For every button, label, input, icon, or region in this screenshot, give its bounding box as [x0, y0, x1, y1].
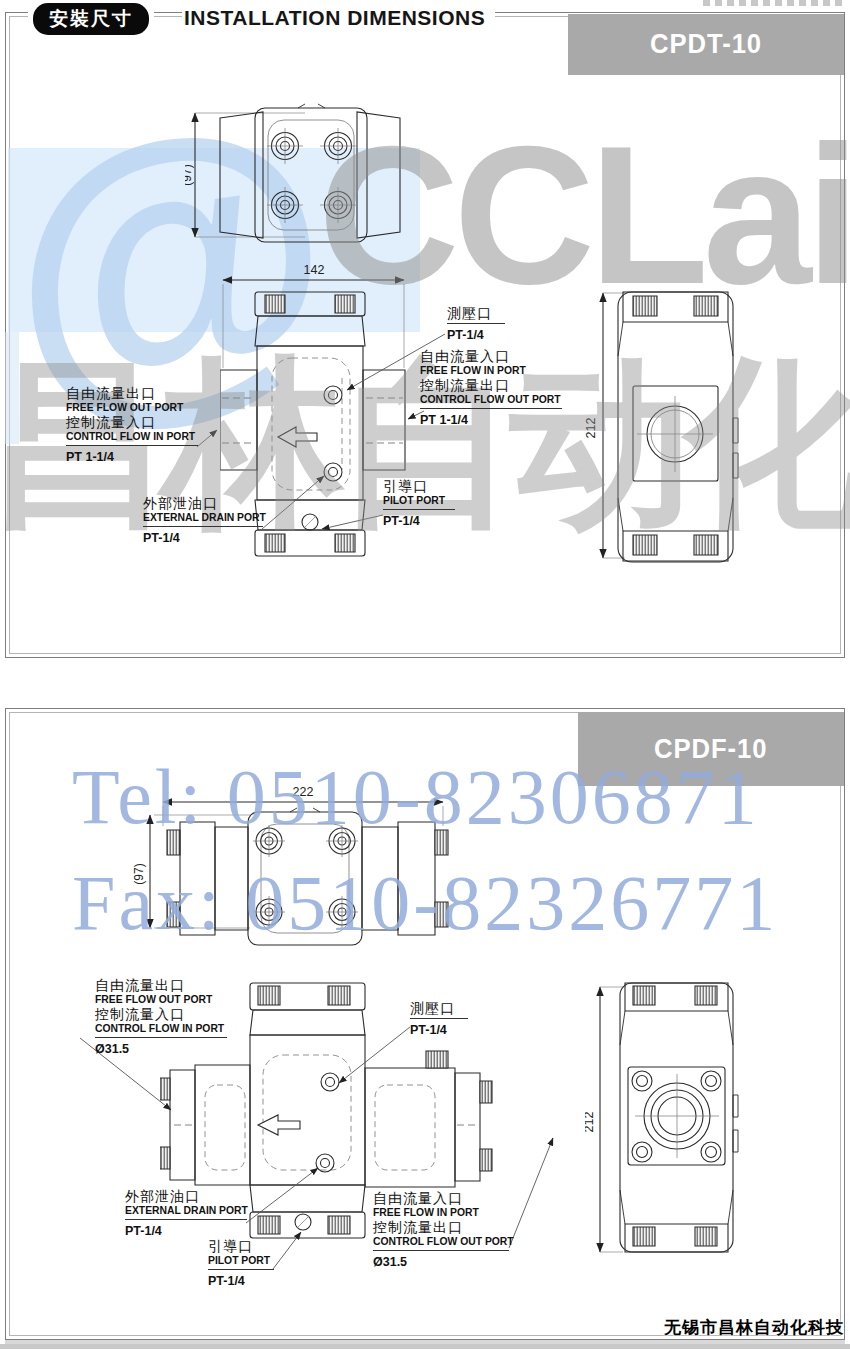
dim-depth: (97) — [185, 164, 194, 185]
bolt-icon — [326, 896, 358, 928]
section-badge-text: 安裝尺寸 — [33, 3, 149, 35]
main-port-circle — [635, 1074, 719, 1158]
flow-arrow-icon — [258, 1115, 300, 1135]
label-flow-right-p1: 自由流量入口 FREE FLOW IN PORT 控制流量出口 CONTROL … — [420, 348, 585, 427]
flange-bolt-icon — [632, 1071, 652, 1091]
main-port-circle — [637, 396, 713, 472]
bolt-icon — [253, 896, 285, 928]
label-test-port-p2: 測壓口 PT-1/4 — [410, 1000, 468, 1037]
flow-arrow-icon — [278, 427, 317, 447]
model-banner-cpdf10: CPDF-10 — [578, 712, 844, 786]
label-pilot-port-p1: 引導口 PILOT PORT PT-1/4 — [383, 478, 455, 528]
bolt-icon — [326, 825, 358, 857]
footer-company: 无锡市昌林自动化科技 — [664, 1316, 844, 1339]
label-pilot-port-p2: 引導口 PILOT PORT PT-1/4 — [208, 1238, 274, 1288]
model-banner-cpdt10: CPDT-10 — [568, 14, 844, 75]
label-flow-right-p2: 自由流量入口 FREE FLOW IN PORT 控制流量出口 CONTROL … — [373, 1190, 543, 1269]
cpdf10-top-view: 222 (97) — [130, 782, 460, 952]
bolt-icon — [320, 187, 356, 223]
label-drain-port-p1: 外部泄油口 EXTERNAL DRAIN PORT PT-1/4 — [143, 495, 263, 545]
dim-height: 212 — [585, 1112, 596, 1133]
bolt-icon — [253, 825, 285, 857]
cpdt10-side-view: 212 — [575, 268, 760, 575]
dim-width: 222 — [293, 785, 314, 799]
catalog-page: 安裝尺寸 INSTALLATION DIMENSIONS CPDT-10 CPD… — [0, 0, 850, 1365]
drain-port-circle — [324, 463, 342, 481]
dim-height: 212 — [584, 418, 598, 439]
dim-width: 142 — [304, 263, 325, 277]
footer-divider — [0, 1344, 850, 1349]
section-badge: 安裝尺寸 — [28, 1, 154, 37]
pilot-port-circle — [302, 514, 318, 530]
drain-port-circle — [316, 1154, 334, 1172]
model-name: CPDF-10 — [654, 734, 768, 765]
pilot-port-circle — [295, 1214, 311, 1230]
flange-bolt-icon — [632, 1142, 652, 1162]
page-title: INSTALLATION DIMENSIONS — [182, 4, 495, 32]
cpdt10-top-view: (97) — [185, 100, 415, 250]
test-port-circle — [324, 386, 342, 404]
test-port-circle — [321, 1073, 339, 1091]
cpdf10-side-view: 212 — [585, 975, 780, 1275]
label-flow-left-p2: 自由流量出口 FREE FLOW OUT PORT 控制流量入口 CONTROL… — [95, 977, 255, 1056]
label-drain-port-p2: 外部泄油口 EXTERNAL DRAIN PORT PT-1/4 — [125, 1188, 247, 1238]
bolt-icon — [267, 128, 303, 164]
bolt-icon — [320, 128, 356, 164]
model-name: CPDT-10 — [650, 29, 762, 60]
dim-depth: (97) — [132, 863, 146, 884]
flange-bolt-icon — [701, 1142, 721, 1162]
bolt-icon — [267, 187, 303, 223]
label-flow-left-p1: 自由流量出口 FREE FLOW OUT PORT 控制流量入口 CONTROL… — [66, 385, 226, 464]
flange-bolt-icon — [701, 1071, 721, 1091]
cropped-text-fragment — [703, 0, 845, 6]
label-test-port-p1: 測壓口 PT-1/4 — [447, 305, 505, 342]
